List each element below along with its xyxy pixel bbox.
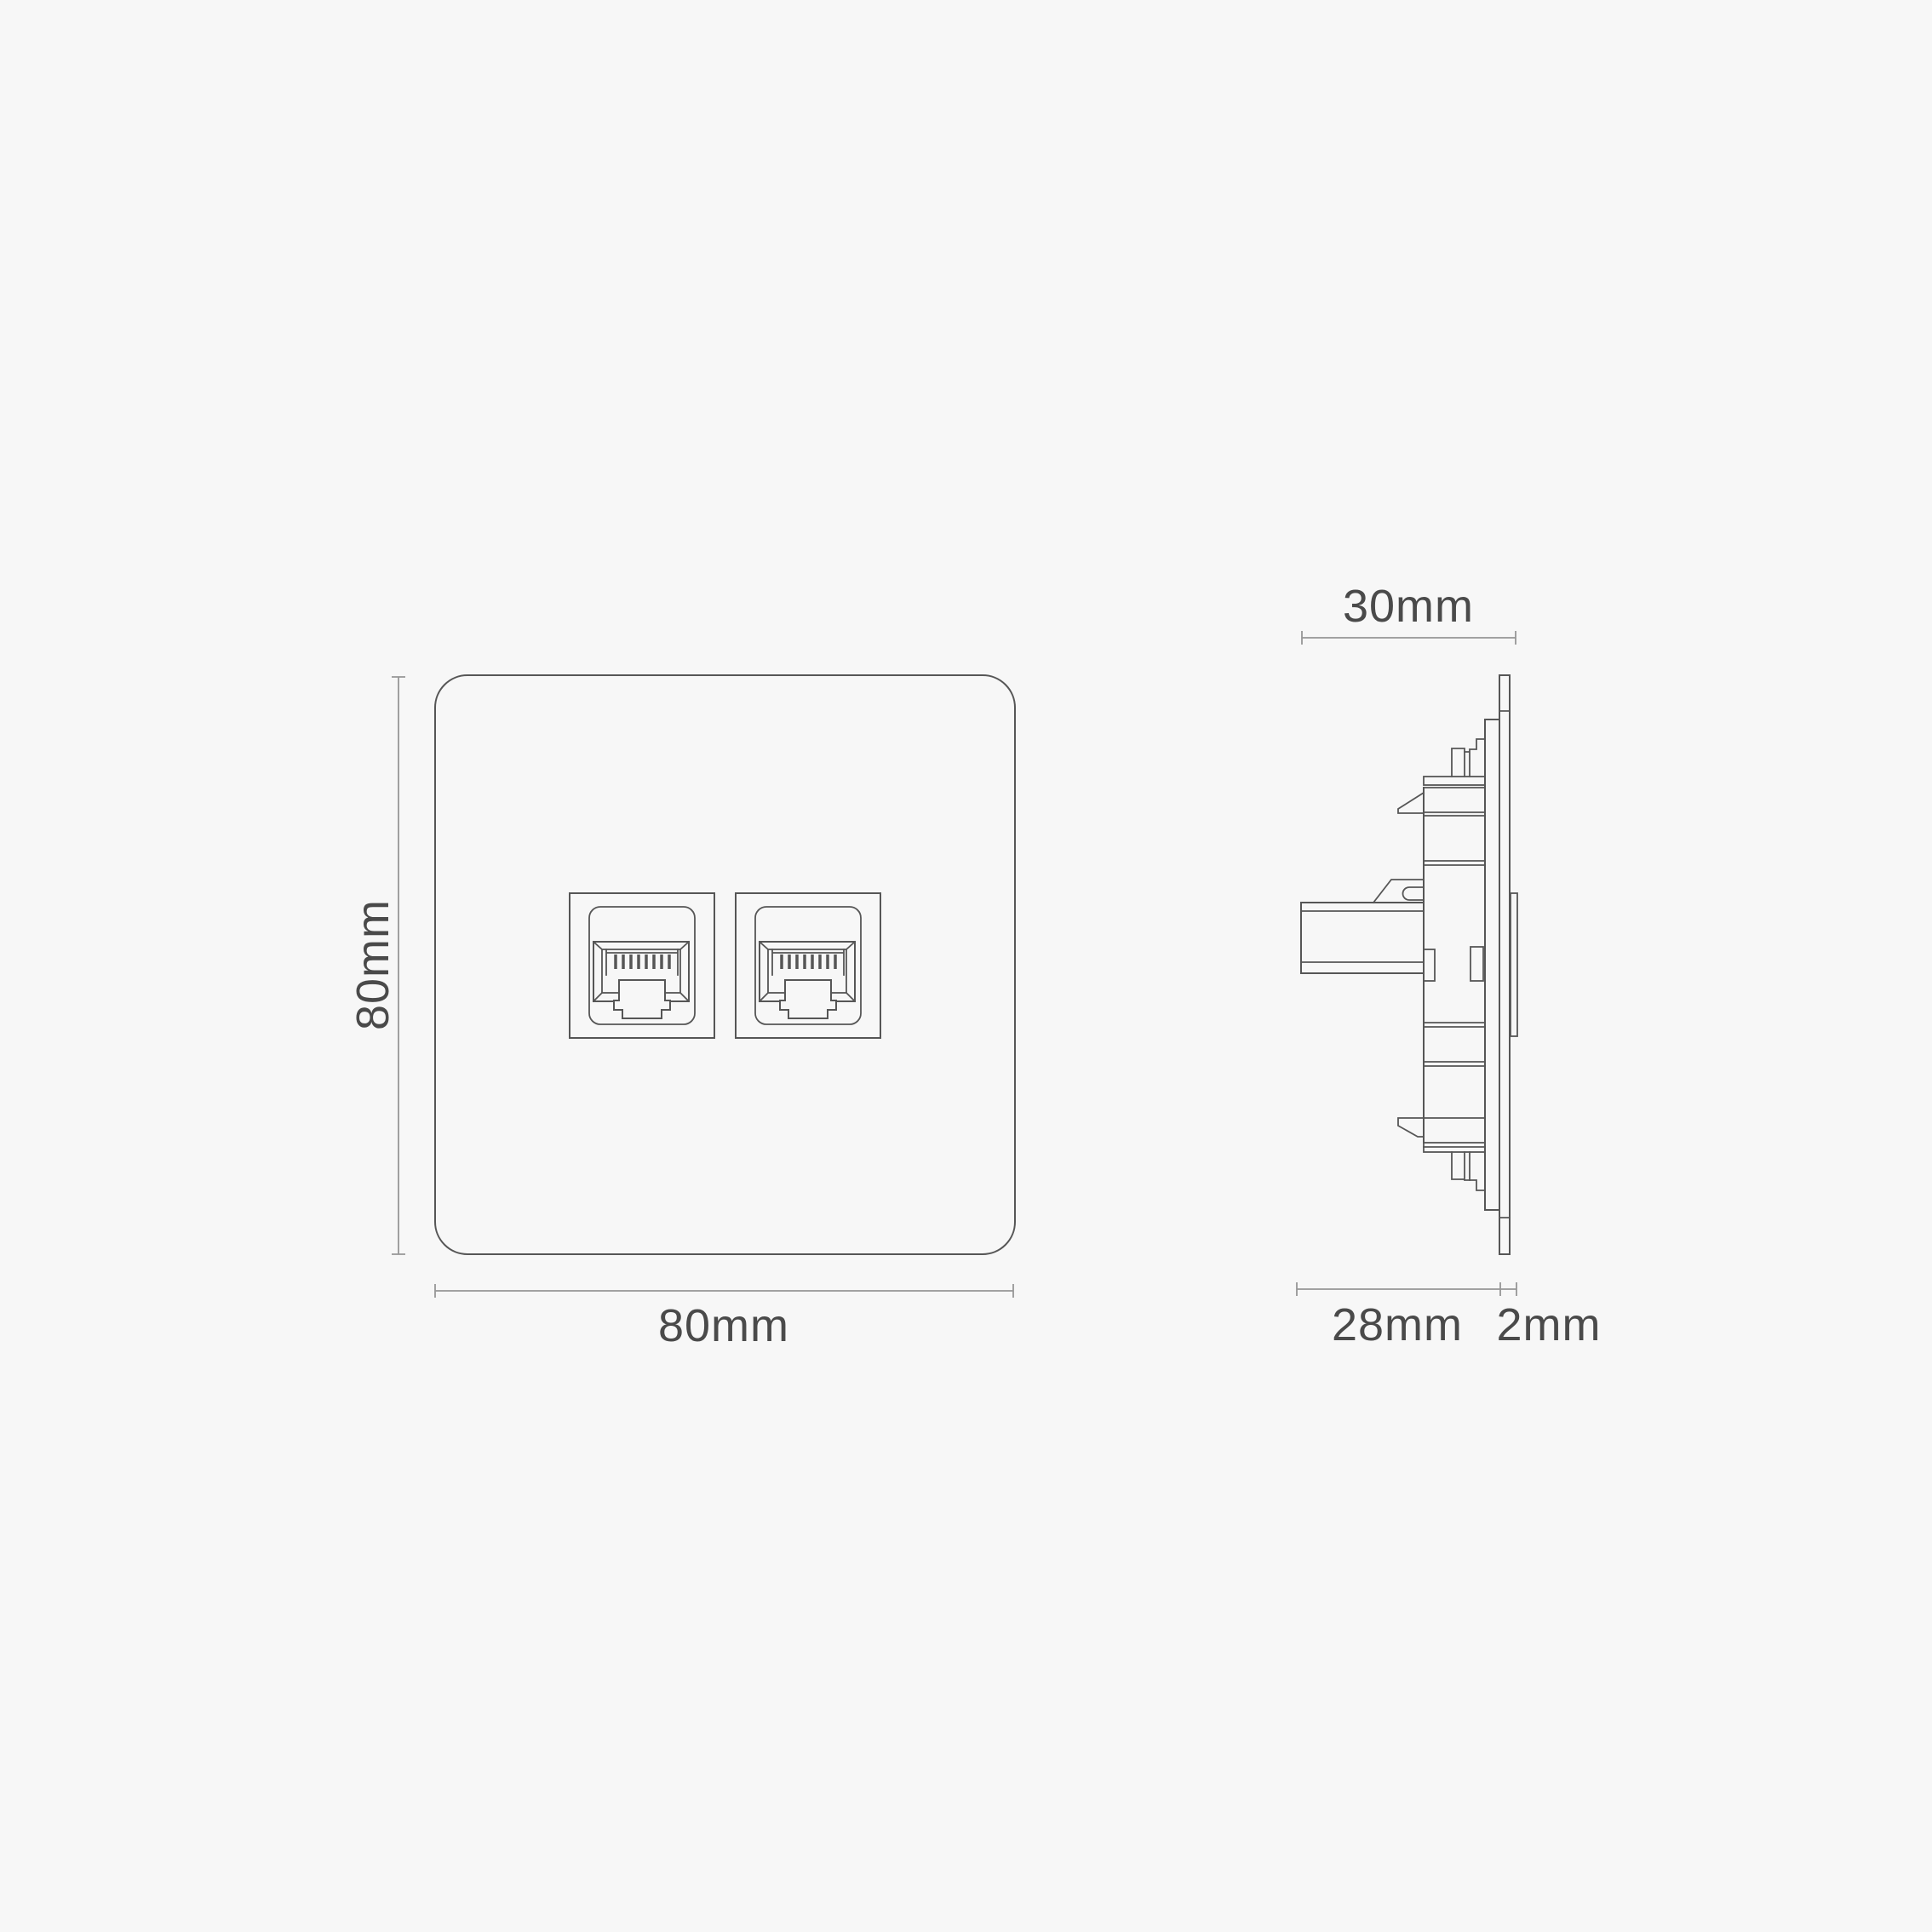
plate-thickness-dimension-label: 2mm (1497, 1299, 1602, 1350)
side-view (1301, 675, 1517, 1254)
rj45-port-left (570, 893, 714, 1038)
module-depth-dimension: 28mm 2mm (1297, 1282, 1602, 1350)
depth-dimension: 30mm (1302, 581, 1516, 645)
height-dimension-label: 80mm (347, 899, 398, 1030)
width-dimension-label: 80mm (658, 1300, 789, 1351)
rj45-port-right (736, 893, 880, 1038)
mounting-plate-side (1485, 719, 1499, 1210)
module-depth-dimension-label: 28mm (1332, 1299, 1463, 1350)
drawing-svg: 80mm 80mm 30mm 28mm 2mm (0, 0, 1932, 1932)
keystone-module-side (1301, 739, 1485, 1190)
height-dimension: 80mm (347, 677, 405, 1254)
width-dimension: 80mm (435, 1284, 1013, 1351)
technical-drawing: 80mm 80mm 30mm 28mm 2mm (0, 0, 1932, 1932)
front-view (435, 675, 1015, 1254)
depth-dimension-label: 30mm (1343, 581, 1474, 632)
faceplate-side (1499, 675, 1510, 1254)
faceplate-boss (1511, 893, 1517, 1036)
faceplate-front (435, 675, 1015, 1254)
